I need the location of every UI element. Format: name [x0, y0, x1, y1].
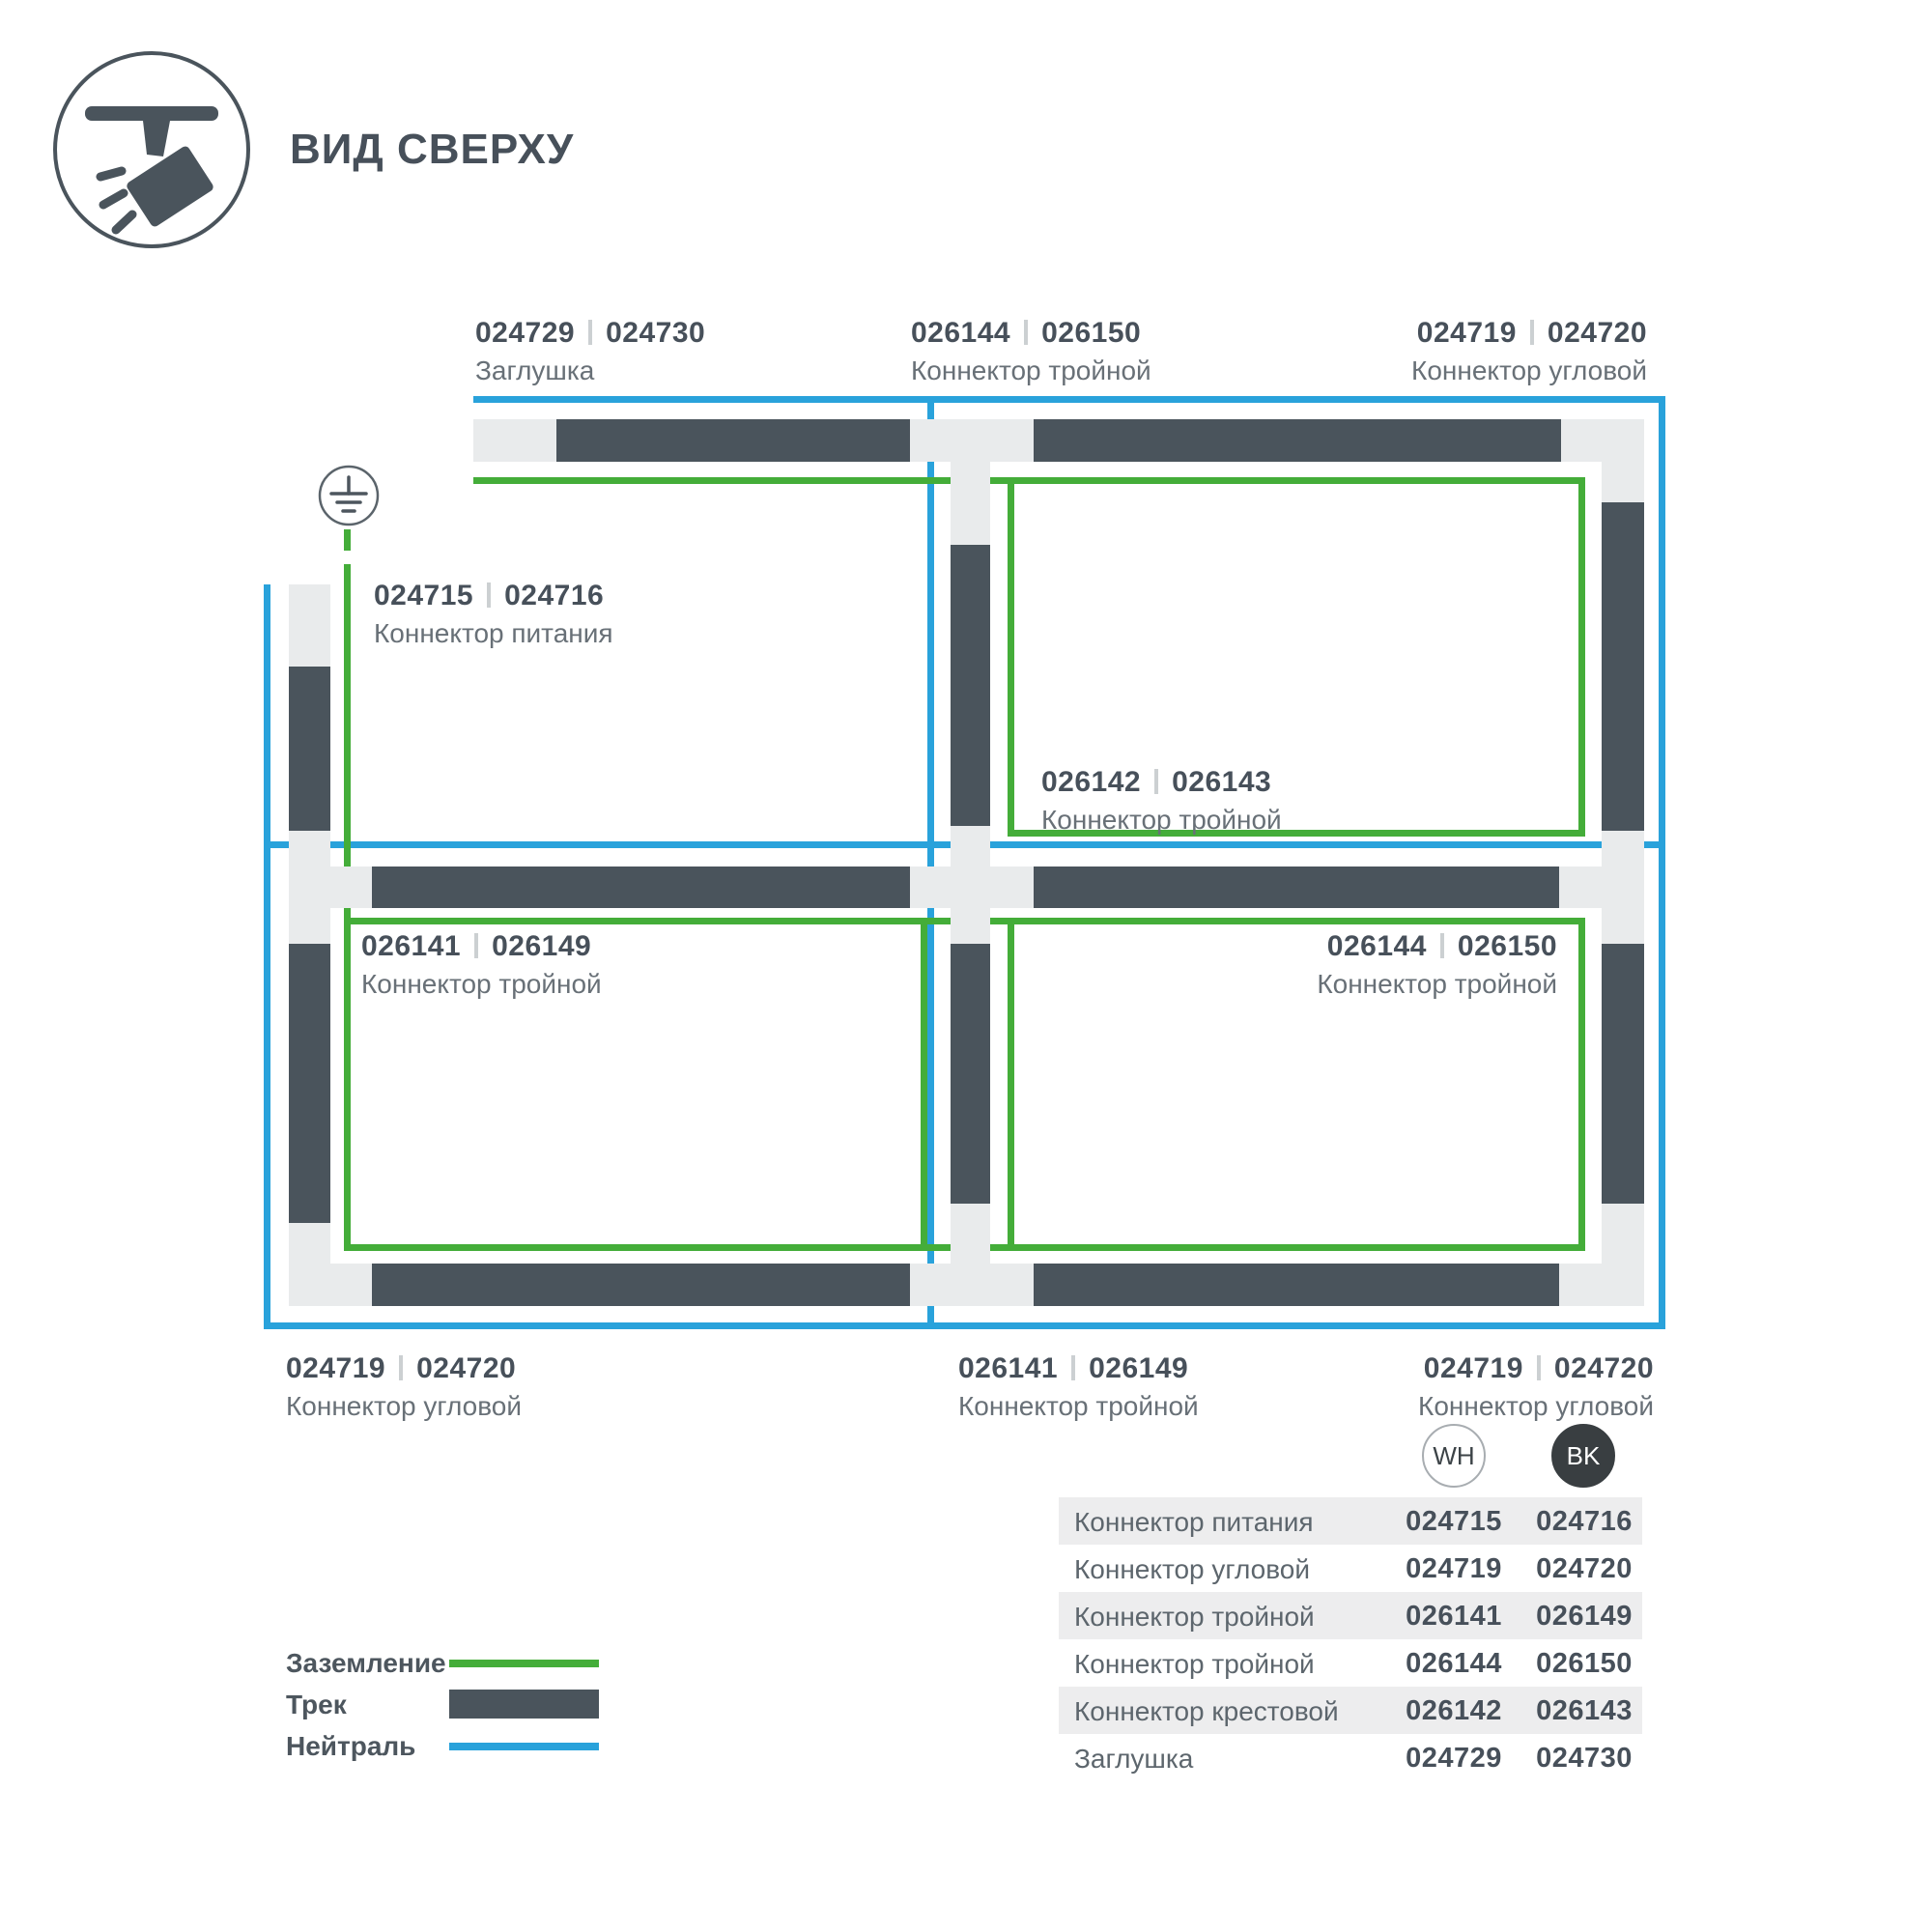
- label-name: Заглушка: [475, 355, 705, 386]
- label-codes: 026144026150: [1317, 930, 1557, 963]
- part-code-bk: 024730: [1536, 1743, 1633, 1775]
- corner-bottom-left-v: [289, 1223, 330, 1306]
- corner-top-right-h: [1561, 419, 1644, 462]
- label-name: Коннектор угловой: [1418, 1391, 1654, 1422]
- pipe-divider: [399, 1355, 403, 1380]
- corner-top-right-v: [1602, 462, 1644, 502]
- corner-bottom-right-v: [1602, 1204, 1644, 1264]
- table-row: Коннектор тройной 026144 026150: [1059, 1639, 1642, 1687]
- label-cell-bottom-left: 026141026149 Коннектор тройной: [361, 930, 602, 1000]
- part-name: Коннектор угловой: [1074, 1554, 1310, 1585]
- label-bottom-left: 024719024720 Коннектор угловой: [286, 1352, 522, 1422]
- part-code-wh: 024719: [1406, 1553, 1502, 1585]
- pipe-divider: [1154, 769, 1158, 794]
- bk-color-badge: BK: [1551, 1424, 1615, 1488]
- part-code-bk: 024716: [1536, 1506, 1633, 1538]
- corner-bottom-left-h: [330, 1264, 372, 1306]
- bk-label: BK: [1567, 1441, 1601, 1471]
- ground-symbol-icon: [317, 464, 381, 527]
- t-connector-top: [910, 419, 1034, 462]
- part-name: Коннектор питания: [1074, 1507, 1314, 1538]
- neutral-line-left: [264, 584, 270, 1329]
- part-code-bk: 024720: [1536, 1553, 1633, 1585]
- track-bottom-1: [372, 1264, 910, 1306]
- neutral-line-swatch: [449, 1743, 599, 1750]
- label-codes: 024719024720: [286, 1352, 522, 1385]
- ground-line-top: [473, 477, 1585, 484]
- neutral-line-top: [473, 396, 1665, 403]
- pipe-divider: [1071, 1355, 1075, 1380]
- pipe-divider: [1537, 1355, 1541, 1380]
- part-code-bk: 026143: [1536, 1695, 1633, 1727]
- neutral-line-bottom: [264, 1322, 1665, 1329]
- label-codes: 026141026149: [361, 930, 602, 963]
- track-top-1: [556, 419, 910, 462]
- label-name: Коннектор тройной: [1041, 805, 1282, 836]
- track-mid-2: [1034, 867, 1559, 908]
- track-left-lower: [289, 944, 330, 1223]
- ground-line-feed-dashed: [344, 529, 351, 583]
- label-codes: 026144026150: [911, 317, 1151, 350]
- t-connector-left-v: [289, 831, 330, 944]
- legend-label: Трек: [286, 1690, 347, 1720]
- part-code-bk: 026150: [1536, 1648, 1633, 1680]
- track-center-upper: [951, 545, 990, 826]
- track-bar-swatch: [449, 1690, 599, 1719]
- ground-line-br-right: [1578, 918, 1585, 1251]
- label-name: Коннектор тройной: [361, 969, 602, 1000]
- track-bottom-2: [1034, 1264, 1559, 1306]
- legend-label: Нейтраль: [286, 1731, 415, 1762]
- t-connector-right-v: [1602, 831, 1644, 944]
- label-codes: 024715024716: [374, 580, 613, 612]
- label-name: Коннектор тройной: [1317, 969, 1557, 1000]
- table-row: Коннектор крестовой 026142 026143: [1059, 1687, 1642, 1734]
- part-name: Заглушка: [1074, 1744, 1193, 1775]
- pipe-divider: [1024, 320, 1028, 345]
- label-endcap: 024729024730 Заглушка: [475, 317, 705, 386]
- part-code-wh: 024729: [1406, 1743, 1502, 1775]
- label-name: Коннектор тройной: [958, 1391, 1199, 1422]
- pipe-divider: [1530, 320, 1534, 345]
- legend-item-ground: Заземление: [286, 1648, 605, 1683]
- label-codes: 024719024720: [1411, 317, 1647, 350]
- part-code-wh: 026144: [1406, 1648, 1502, 1680]
- t-connector-bottom-stub: [951, 1204, 990, 1264]
- t-connector-center-top: [951, 462, 990, 545]
- part-name: Коннектор крестовой: [1074, 1696, 1339, 1727]
- track-right-upper: [1602, 502, 1644, 831]
- ground-line-swatch: [449, 1660, 599, 1667]
- ground-line-tr-right: [1578, 477, 1585, 837]
- wh-color-badge: WH: [1422, 1424, 1486, 1488]
- label-top-right: 024719024720 Коннектор угловой: [1411, 317, 1647, 386]
- part-code-bk: 026149: [1536, 1601, 1633, 1633]
- part-name: Коннектор тройной: [1074, 1602, 1315, 1633]
- label-top-center: 026144026150 Коннектор тройной: [911, 317, 1151, 386]
- track-center-lower: [951, 944, 990, 1204]
- label-codes: 024719024720: [1418, 1352, 1654, 1385]
- label-power-feed: 024715024716 Коннектор питания: [374, 580, 613, 649]
- pipe-divider: [474, 933, 478, 958]
- legend-label: Заземление: [286, 1648, 446, 1679]
- table-row: Коннектор тройной 026141 026149: [1059, 1592, 1642, 1639]
- ground-line-bl-right: [921, 918, 927, 1251]
- label-cell-bottom-right: 026144026150 Коннектор тройной: [1317, 930, 1557, 1000]
- label-name: Коннектор питания: [374, 618, 613, 649]
- label-codes: 026141026149: [958, 1352, 1199, 1385]
- pipe-divider: [588, 320, 592, 345]
- label-cell-top-right: 026142026143 Коннектор тройной: [1041, 766, 1282, 836]
- ground-line-tr-left: [1008, 477, 1014, 837]
- t-connector-right-h: [1559, 867, 1602, 908]
- power-connector-piece: [289, 584, 330, 667]
- page: ВИД СВЕРХУ: [0, 0, 1932, 1932]
- label-bottom-center: 026141026149 Коннектор тройной: [958, 1352, 1199, 1422]
- label-bottom-right: 024719024720 Коннектор угловой: [1418, 1352, 1654, 1422]
- track-spotlight-icon: [50, 48, 253, 251]
- wh-label: WH: [1433, 1441, 1474, 1471]
- corner-bottom-right-h: [1559, 1264, 1644, 1306]
- track-mid-1: [372, 867, 910, 908]
- pipe-divider: [487, 582, 491, 608]
- neutral-line-center: [927, 396, 934, 1329]
- legend-item-neutral: Нейтраль: [286, 1731, 605, 1766]
- track-top-2: [1034, 419, 1561, 462]
- endcap-piece: [473, 419, 556, 462]
- part-code-wh: 026142: [1406, 1695, 1502, 1727]
- table-row: Коннектор угловой 024719 024720: [1059, 1545, 1642, 1592]
- legend-item-track: Трек: [286, 1690, 605, 1724]
- label-name: Коннектор угловой: [286, 1391, 522, 1422]
- ground-line-br-left: [1008, 918, 1014, 1251]
- track-left-upper: [289, 667, 330, 831]
- t-connector-left-h: [330, 867, 372, 908]
- t-connector-bottom: [910, 1264, 1034, 1306]
- table-row: Заглушка 024729 024730: [1059, 1734, 1642, 1781]
- page-title: ВИД СВЕРХУ: [290, 126, 574, 174]
- cross-connector-h: [910, 867, 1034, 908]
- label-name: Коннектор тройной: [911, 355, 1151, 386]
- part-name: Коннектор тройной: [1074, 1649, 1315, 1680]
- label-name: Коннектор угловой: [1411, 355, 1647, 386]
- part-code-wh: 026141: [1406, 1601, 1502, 1633]
- table-row: Коннектор питания 024715 024716: [1059, 1497, 1642, 1545]
- ground-line-feed: [344, 580, 351, 1251]
- part-code-wh: 024715: [1406, 1506, 1502, 1538]
- label-codes: 024729024730: [475, 317, 705, 350]
- neutral-line-right: [1659, 396, 1665, 1329]
- pipe-divider: [1440, 933, 1444, 958]
- track-right-lower: [1602, 944, 1644, 1204]
- label-codes: 026142026143: [1041, 766, 1282, 799]
